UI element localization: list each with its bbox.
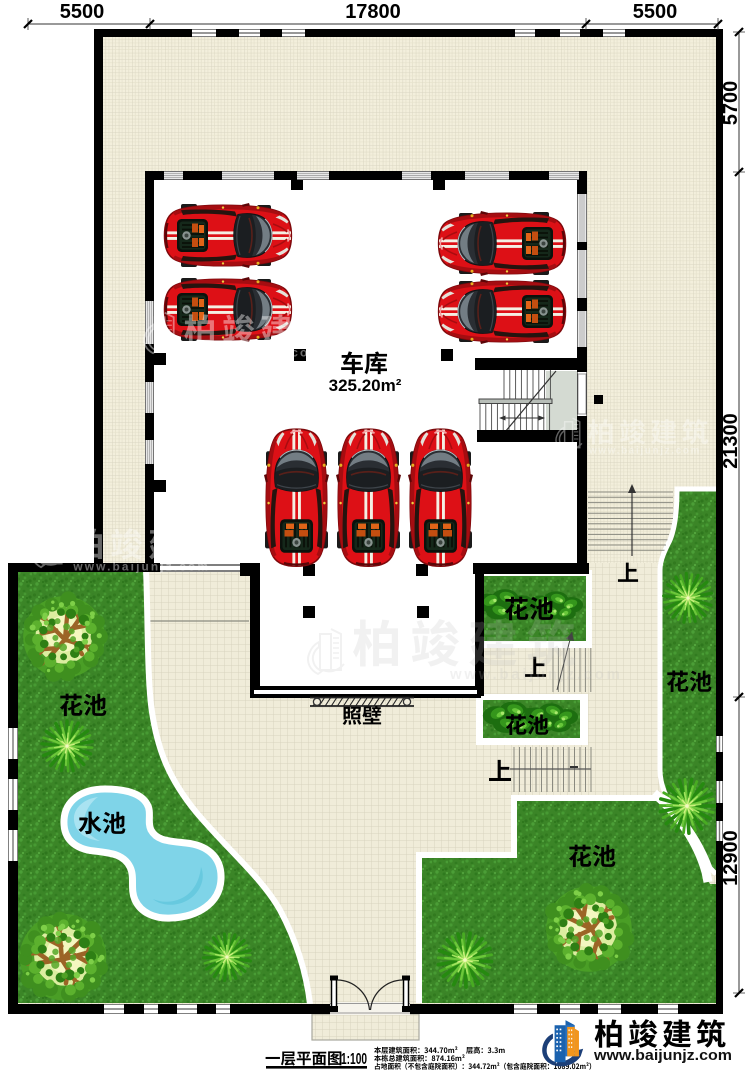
svg-text:1:100: 1:100 (341, 1051, 367, 1068)
svg-text:www.baijunjz.com: www.baijunjz.com (72, 559, 210, 573)
svg-text:www.baijunjz.com: www.baijunjz.com (593, 1048, 732, 1064)
svg-text:www.baijunjz.com: www.baijunjz.com (588, 446, 701, 457)
svg-text:www.baijunjz.com: www.baijunjz.com (184, 345, 322, 359)
svg-text:5700: 5700 (720, 81, 742, 126)
svg-text:5500: 5500 (633, 1, 678, 23)
svg-text:5500: 5500 (60, 1, 105, 23)
svg-text:www.baijunjz.com: www.baijunjz.com (449, 666, 623, 683)
svg-text:21300: 21300 (720, 413, 742, 469)
svg-text:17800: 17800 (345, 1, 401, 23)
svg-text:12900: 12900 (720, 830, 742, 886)
svg-text:325.20m²: 325.20m² (329, 376, 402, 395)
